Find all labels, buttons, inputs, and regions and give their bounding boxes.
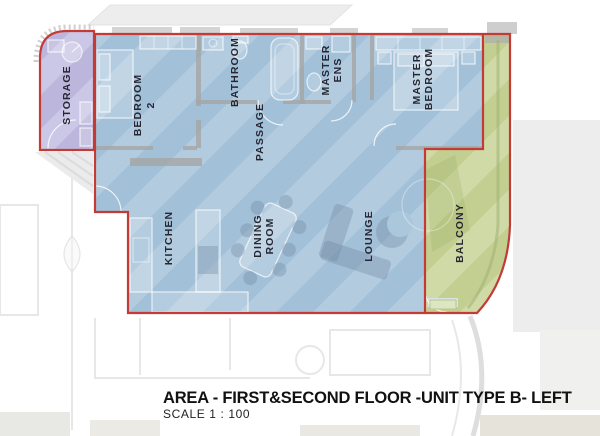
plan-scale: SCALE 1 : 100 [163,407,250,421]
ghost-bottom-blob-2 [90,420,160,436]
room-label-master-ens-line1: MASTER [320,45,332,96]
floor-plan-drawing: STORAGE BEDROOM 2 BATHROOM MASTER ENS MA… [0,0,600,436]
room-label-bedroom2-line2: 2 [145,102,157,109]
ghost-lower-circle [296,346,324,374]
ghost-bottom-blob-3 [300,425,420,436]
ghost-lower-unit-walls [95,318,310,378]
room-label-lounge: LOUNGE [363,210,375,262]
ghost-hatch-triangle [35,152,93,194]
room-label-storage: STORAGE [61,65,73,124]
ghost-lower-room [330,330,430,375]
room-label-master-ens-line2: ENS [332,58,344,83]
room-label-kitchen: KITCHEN [163,211,175,265]
room-label-balcony: BALCONY [454,203,466,263]
ghost-double-door-right-leaf [72,236,80,272]
room-label-master-bedroom-line2: BEDROOM [423,48,435,111]
ghost-bottom-blob-4 [480,415,600,436]
room-label-bedroom2-line1: BEDROOM [132,74,144,137]
room-label-dining-line1: DINING [252,214,264,257]
room-label-master-bedroom-line1: MASTER [411,54,423,105]
room-label-passage: PASSAGE [254,103,266,161]
ghost-bottom-blob-1 [0,412,70,436]
ghost-right-block [513,120,600,332]
floor-plan-page: STORAGE BEDROOM 2 BATHROOM MASTER ENS MA… [0,0,600,436]
ghost-roof-band [88,5,352,25]
ghost-left-room [0,205,38,315]
room-label-bathroom: BATHROOM [229,37,241,107]
ghost-path-curve-inner [452,320,461,436]
room-label-dining-line2: ROOM [264,217,276,254]
ghost-double-door-left-leaf [64,236,72,272]
plan-title: AREA - FIRST&SECOND FLOOR -UNIT TYPE B- … [163,389,572,407]
